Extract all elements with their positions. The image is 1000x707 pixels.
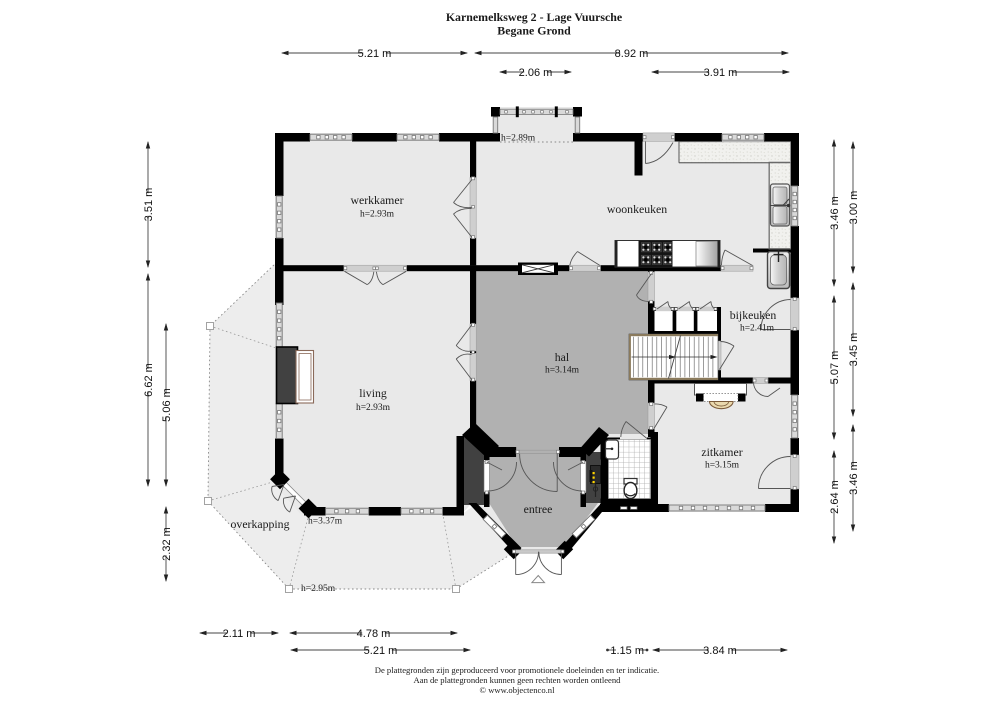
svg-text:8.92 m: 8.92 m [615,48,649,60]
svg-text:2.11 m: 2.11 m [223,628,256,640]
svg-text:5.07 m: 5.07 m [829,351,841,385]
svg-text:Begane Grond: Begane Grond [497,24,571,38]
svg-text:woonkeuken: woonkeuken [607,202,667,216]
svg-text:5.06 m: 5.06 m [161,388,173,422]
svg-text:h=3.15m: h=3.15m [705,461,740,471]
svg-text:Aan de plattegronden kunnen ge: Aan de plattegronden kunnen geen rechten… [414,675,622,685]
svg-text:6.62 m: 6.62 m [143,363,155,397]
svg-text:4.78 m: 4.78 m [357,628,391,640]
svg-text:5.21 m: 5.21 m [364,645,398,657]
svg-text:3.46 m: 3.46 m [848,461,860,495]
svg-text:werkkamer: werkkamer [350,193,403,207]
svg-text:2.06 m: 2.06 m [519,67,553,79]
svg-text:2.32 m: 2.32 m [161,527,173,561]
svg-text:3.45 m: 3.45 m [848,333,860,367]
svg-text:2.64 m: 2.64 m [829,480,841,514]
svg-text:entree: entree [524,502,553,516]
svg-text:3.00 m: 3.00 m [848,191,860,225]
svg-text:h=2.93m: h=2.93m [356,403,391,413]
svg-text:h=3.37m: h=3.37m [308,517,343,527]
svg-text:© www.objectenco.nl: © www.objectenco.nl [480,685,556,695]
svg-text:3.91 m: 3.91 m [704,67,738,79]
svg-text:zitkamer: zitkamer [701,445,742,459]
svg-text:overkapping: overkapping [231,517,290,531]
svg-text:De plattegronden zijn geproduc: De plattegronden zijn geproduceerd voor … [375,665,659,675]
svg-text:h=2.41m: h=2.41m [740,324,775,334]
svg-text:3.51 m: 3.51 m [143,188,155,222]
svg-text:hal: hal [555,350,570,364]
svg-text:h=2.89m: h=2.89m [501,134,536,144]
svg-text:Karnemelksweg 2 - Lage Vuursch: Karnemelksweg 2 - Lage Vuursche [446,10,622,24]
svg-text:5.21 m: 5.21 m [358,48,392,60]
svg-text:h=2.93m: h=2.93m [360,210,395,220]
svg-text:living: living [359,386,387,400]
svg-text:bijkeuken: bijkeuken [730,308,777,322]
svg-text:3.84 m: 3.84 m [703,645,737,657]
svg-text:h=2.95m: h=2.95m [301,584,336,594]
svg-text:1.15 m: 1.15 m [610,645,644,657]
svg-text:h=3.14m: h=3.14m [545,366,580,376]
svg-text:3.46 m: 3.46 m [829,196,841,230]
